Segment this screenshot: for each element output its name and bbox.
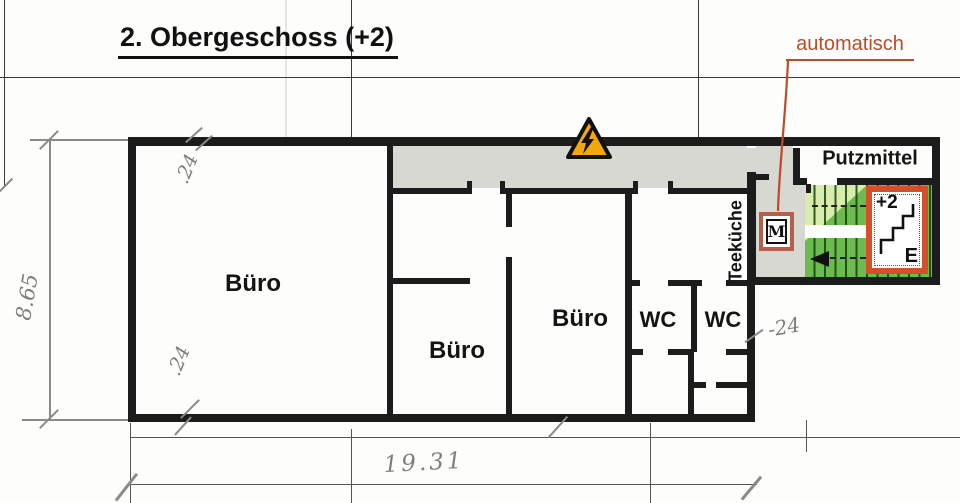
- high-voltage-warning-icon: [564, 115, 614, 163]
- dim-ext-line: [351, 429, 352, 503]
- dim-tick: [741, 476, 762, 501]
- dim-ext-line: [30, 139, 128, 141]
- dim-ext-line: [22, 419, 128, 421]
- wall-segment: [932, 137, 940, 285]
- page-title: 2. Obergeschoss (+2): [118, 22, 398, 59]
- stair-direction-arrow-icon: [810, 251, 829, 267]
- dim-tick: [115, 473, 138, 501]
- stair-steps-icon: [872, 192, 922, 268]
- motor-letter: M: [766, 219, 787, 244]
- wall-segment: [128, 137, 136, 422]
- door-jamb: [668, 181, 673, 189]
- wall-segment: [716, 382, 747, 388]
- wall-segment: [668, 188, 747, 194]
- staircase-mid-landing: [805, 225, 867, 238]
- wall-segment: [128, 137, 940, 146]
- stairwell-level-sign: +2 E: [866, 186, 928, 274]
- wall-segment: [747, 172, 756, 277]
- dim-text-height: 8.65: [11, 272, 43, 322]
- wall-segment: [632, 280, 640, 286]
- door-jamb: [806, 184, 811, 193]
- floorplan-sheet: 2. Obergeschoss (+2) Büro Büro B: [0, 0, 960, 503]
- room-label-teekueche: Teeküche: [726, 200, 747, 282]
- grid-line: [285, 0, 287, 140]
- wall-segment: [632, 349, 643, 355]
- door-jamb: [500, 181, 505, 189]
- grid-line: [351, 0, 352, 140]
- wall-segment: [128, 414, 755, 422]
- wall-segment: [694, 382, 706, 388]
- corridor-door-opening: [747, 148, 756, 174]
- dim-text-width: 19.31: [383, 448, 465, 478]
- room-label-wc-1: WC: [640, 307, 677, 333]
- dim-line-width: [130, 437, 960, 438]
- wall-segment: [387, 278, 470, 284]
- grid-line: [0, 77, 960, 78]
- grid-tick: [0, 178, 13, 192]
- automatic-door-label: automatisch: [786, 33, 914, 61]
- wall-thickness-note-right: -24: [766, 312, 802, 341]
- wall-thickness-note-top: .24: [171, 151, 203, 187]
- wall-segment: [625, 188, 632, 414]
- dim-ext-line: [130, 423, 131, 503]
- stair-walkline: [830, 257, 866, 259]
- wall-segment: [726, 349, 747, 355]
- wall-segment: [747, 277, 940, 285]
- dim-ext-line: [650, 423, 651, 503]
- room-label-wc-2: WC: [705, 307, 742, 333]
- wall-segment: [793, 178, 807, 185]
- room-label-putzmittel: Putzmittel: [822, 148, 918, 171]
- room-label-buero-3: Büro: [552, 305, 608, 333]
- door-jamb: [633, 181, 638, 189]
- room-label-buero-2: Büro: [429, 337, 485, 365]
- wall-segment: [691, 280, 697, 352]
- stair-walkline: [812, 205, 866, 207]
- dim-line-height: [49, 140, 51, 420]
- wall-segment: [747, 285, 755, 422]
- dim-line-width: [130, 484, 757, 485]
- dim-ext-line: [806, 420, 807, 452]
- grid-line: [698, 0, 699, 140]
- wall-segment: [837, 178, 932, 185]
- door-jamb: [387, 179, 393, 188]
- grid-line: [4, 0, 5, 187]
- wall-segment: [387, 188, 472, 194]
- wall-thickness-note-bottom: .24: [163, 343, 195, 379]
- room-label-buero-1: Büro: [225, 270, 281, 298]
- door-motor-symbol: M: [759, 212, 794, 251]
- wall-segment: [500, 188, 638, 194]
- wall-segment: [506, 188, 512, 227]
- door-jamb: [756, 174, 769, 180]
- wall-segment: [506, 257, 512, 414]
- wall-segment: [793, 148, 800, 178]
- door-jamb: [467, 181, 472, 189]
